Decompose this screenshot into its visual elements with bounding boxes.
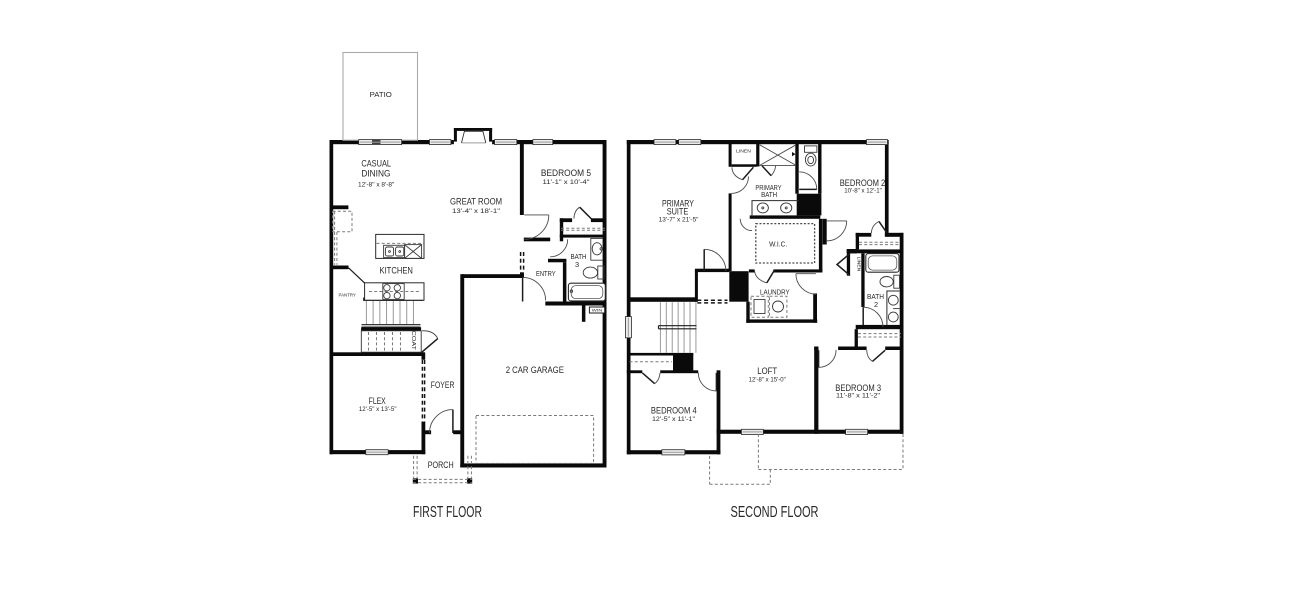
svg-text:FLEX: FLEX	[369, 396, 386, 406]
svg-text:BEDROOM 5: BEDROOM 5	[541, 168, 591, 178]
svg-text:FOYER: FOYER	[431, 380, 455, 390]
svg-text:DINING: DINING	[361, 169, 390, 179]
svg-text:CASUAL: CASUAL	[361, 159, 391, 169]
svg-text:SUITE: SUITE	[667, 207, 689, 217]
svg-text:12'-5" x 13'-5": 12'-5" x 13'-5"	[359, 406, 397, 413]
svg-text:LOFT: LOFT	[757, 366, 777, 376]
svg-text:13'-7" x 21'-5": 13'-7" x 21'-5"	[659, 217, 699, 224]
svg-text:COAT: COAT	[410, 331, 416, 351]
svg-text:FIRST FLOOR: FIRST FLOOR	[413, 504, 482, 521]
svg-text:2: 2	[874, 300, 878, 309]
svg-text:13'-4" x 18'-1": 13'-4" x 18'-1"	[452, 208, 500, 215]
svg-text:SECOND FLOOR: SECOND FLOOR	[731, 504, 819, 521]
svg-text:12'-8" x 8'-8": 12'-8" x 8'-8"	[358, 181, 394, 188]
svg-text:GREAT ROOM: GREAT ROOM	[450, 197, 502, 207]
svg-text:LINEN: LINEN	[856, 257, 861, 272]
svg-text:BEDROOM 4: BEDROOM 4	[651, 406, 697, 416]
svg-text:PATIO: PATIO	[370, 90, 392, 99]
svg-text:PANTRY: PANTRY	[339, 292, 356, 297]
svg-text:W.I.C.: W.I.C.	[769, 240, 787, 249]
svg-text:ENTRY: ENTRY	[536, 269, 556, 278]
svg-text:BATH: BATH	[761, 192, 777, 199]
svg-text:12'-5" x 11'-1": 12'-5" x 11'-1"	[652, 416, 695, 423]
svg-text:KITCHEN: KITCHEN	[380, 266, 413, 276]
svg-text:10'-8" x 12'-1": 10'-8" x 12'-1"	[844, 187, 882, 194]
svg-text:WIN: WIN	[592, 309, 603, 313]
svg-text:11'-8" x 11'-2": 11'-8" x 11'-2"	[836, 393, 880, 400]
svg-text:12'-8" x 15'-0": 12'-8" x 15'-0"	[749, 376, 786, 383]
svg-text:LINEN: LINEN	[736, 148, 751, 153]
svg-text:3: 3	[575, 260, 579, 269]
svg-text:11'-1" x 10'-4": 11'-1" x 10'-4"	[543, 179, 590, 186]
svg-text:PORCH: PORCH	[428, 460, 454, 470]
svg-text:2 CAR GARAGE: 2 CAR GARAGE	[506, 365, 564, 375]
svg-text:PRIMARY: PRIMARY	[755, 185, 781, 192]
svg-text:LAUNDRY: LAUNDRY	[760, 288, 790, 297]
